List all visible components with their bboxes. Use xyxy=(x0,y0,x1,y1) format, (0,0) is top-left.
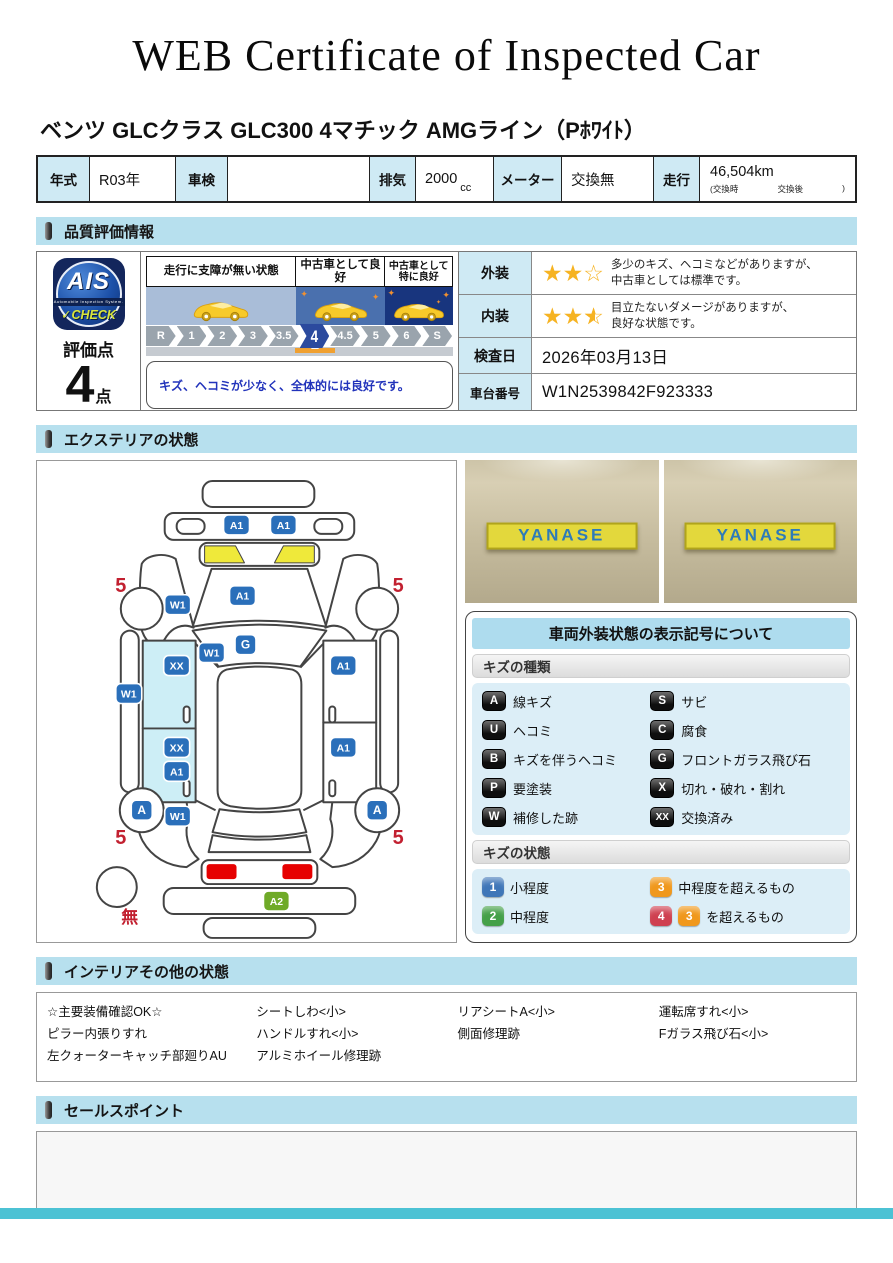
scale-tick-4: 4 xyxy=(300,324,330,348)
interior-notes-column: 運転席すれ<小>Fガラス飛び石<小> xyxy=(659,1002,852,1072)
damage-state-list: 1小程度3中程度を超えるもの2中程度43を超えるもの xyxy=(472,869,850,934)
damage-kind-W: W補修した跡 xyxy=(482,807,650,827)
interior-notes-column: リアシートA<小>側面修理跡 xyxy=(458,1002,659,1072)
star-half-icon: ☆★ xyxy=(583,305,604,328)
section-header-quality: 品質評価情報 xyxy=(36,217,857,245)
page-title: WEB Certificate of Inspected Car xyxy=(0,30,893,81)
inspection-date-value: 2026年03月13日 xyxy=(531,338,856,374)
scale-tick-R: R xyxy=(146,326,176,346)
section-header-sales: セールスポイント xyxy=(36,1096,857,1124)
exterior-stars: ★★☆ xyxy=(542,262,604,285)
damage-kind-S: Sサビ xyxy=(650,691,840,711)
sparkle-icon: ✦ xyxy=(372,292,380,303)
interior-notes-column: ☆主要装備確認OK☆ピラー内張りすれ左クォーターキャッチ部廻りAU xyxy=(47,1002,256,1072)
damage-marker-A1: A1 xyxy=(330,737,356,757)
interior-note: リアシートA<小> xyxy=(458,1002,659,1024)
damage-kind-XX: XX交換済み xyxy=(650,807,840,827)
star-full-icon: ★ xyxy=(542,262,563,285)
exterior-diagram-box: A1A1A1W1GW1XXW1XXA1A1A1AAW1A25555無 xyxy=(36,460,457,943)
footer-bar xyxy=(0,1208,893,1219)
sparkle-icon: ✦ xyxy=(300,289,308,300)
svg-text:G: G xyxy=(241,638,250,652)
svg-text:XX: XX xyxy=(170,743,184,754)
evaluation-comment: キズ、ヘコミが少なく、全体的には良好です。 xyxy=(146,361,453,409)
photo-left: YANASE xyxy=(465,460,659,603)
inspection-label: 車検 xyxy=(176,157,228,201)
star-full-icon: ★ xyxy=(542,305,563,328)
evaluation-table: 外装 ★★☆ 多少のキズ、ヘコミなどがありますが、 中古車としては標準です。 内… xyxy=(459,252,856,410)
star-full-icon: ★ xyxy=(563,305,584,328)
vehicle-photos: YANASE YANASE xyxy=(465,460,857,603)
damage-state-badge-3: 3 xyxy=(650,877,672,897)
damage-marker-W1: W1 xyxy=(116,684,142,704)
svg-text:A: A xyxy=(373,803,382,817)
svg-text:A: A xyxy=(137,803,146,817)
damage-state-badge-3: 3 xyxy=(678,906,700,926)
svg-text:A1: A1 xyxy=(170,767,184,778)
damage-kind-badge: P xyxy=(482,778,506,798)
svg-text:A1: A1 xyxy=(236,592,250,603)
damage-marker-W1: W1 xyxy=(199,643,225,663)
damage-state-item: 2中程度 xyxy=(482,906,650,926)
svg-text:A2: A2 xyxy=(270,897,284,908)
damage-kind-badge: A xyxy=(482,691,506,711)
score-indicator xyxy=(295,348,335,353)
svg-text:XX: XX xyxy=(170,662,184,673)
score-unit: 点 xyxy=(95,391,111,405)
svg-text:A1: A1 xyxy=(277,521,291,532)
scale-tick-3: 3 xyxy=(238,326,268,346)
damage-marker-W1: W1 xyxy=(165,595,191,615)
scale-band-label-3: 中古車として 特に良好 xyxy=(385,256,453,287)
displacement-value: 2000 xyxy=(416,171,457,187)
damage-kind-P: P要塗装 xyxy=(482,778,650,798)
damage-kind-A: A線キズ xyxy=(482,691,650,711)
score-value: 4 xyxy=(66,363,95,407)
damage-marker-A1: A1 xyxy=(224,515,250,535)
interior-note: ピラー内張りすれ xyxy=(47,1024,256,1046)
vin-value: W1N2539842F923333 xyxy=(531,374,856,410)
svg-text:A1: A1 xyxy=(337,743,351,754)
damage-kind-C: C腐食 xyxy=(650,720,840,740)
section-title-sales: セールスポイント xyxy=(64,1100,184,1121)
certificate-page: WEB Certificate of Inspected Car ベンツ GLC… xyxy=(0,0,893,1219)
car-body-shapes xyxy=(97,481,399,938)
scale-tick-3.5: 3.5 xyxy=(269,326,299,346)
damage-state-item: 1小程度 xyxy=(482,877,650,897)
scale-band-good: ✦ ✦ xyxy=(296,287,385,325)
scale-tick-2: 2 xyxy=(207,326,237,346)
star-full-icon: ★ xyxy=(563,262,584,285)
legend-title: 車両外装状態の表示記号について xyxy=(472,618,850,649)
legend-state-header: キズの状態 xyxy=(472,840,850,864)
mileage-value: 46,504km xyxy=(710,164,847,180)
damage-state-badge-2: 2 xyxy=(482,906,504,926)
interior-note: 側面修理跡 xyxy=(458,1024,659,1046)
sparkle-icon: ✦ xyxy=(387,288,395,299)
meter-label: メーター xyxy=(494,157,562,201)
section-title-exterior: エクステリアの状態 xyxy=(64,429,199,450)
car-diagram: A1A1A1W1GW1XXW1XXA1A1A1AAW1A25555無 xyxy=(37,461,456,942)
ais-logo: AIS Automobile Inspection System. ✓CHECK xyxy=(53,258,125,330)
vin-label: 車台番号 xyxy=(459,374,531,410)
ais-logo-text: AIS xyxy=(53,268,125,296)
legend-kind-header: キズの種類 xyxy=(472,654,850,678)
svg-text:W1: W1 xyxy=(204,649,220,660)
ais-check-text: ✓CHECK xyxy=(53,307,125,322)
displacement-label: 排気 xyxy=(370,157,416,201)
damage-marker-A2: A2 xyxy=(263,891,289,911)
damage-kind-badge: X xyxy=(650,778,674,798)
damage-marker-A1: A1 xyxy=(164,761,190,781)
yanase-sign: YANASE xyxy=(685,522,836,549)
interior-note: ☆主要装備確認OK☆ xyxy=(47,1002,256,1024)
car-icon xyxy=(190,298,252,322)
section-accent-bar xyxy=(45,962,52,980)
scale-tick-6: 6 xyxy=(392,326,422,346)
damage-marker-A1: A1 xyxy=(270,515,296,535)
damage-marker-XX: XX xyxy=(164,737,190,757)
damage-kind-U: Uヘコミ xyxy=(482,720,650,740)
scale-baseline xyxy=(146,347,453,356)
damage-kind-badge: C xyxy=(650,720,674,740)
scale-tick-S: S xyxy=(422,326,452,346)
interior-notes-box: ☆主要装備確認OK☆ピラー内張りすれ左クォーターキャッチ部廻りAUシートしわ<小… xyxy=(36,992,857,1082)
scale-tick-1: 1 xyxy=(177,326,207,346)
interior-note: 運転席すれ<小> xyxy=(659,1002,852,1024)
mileage-note-left: (交換時 xyxy=(710,183,738,195)
damage-kind-X: X切れ・破れ・割れ xyxy=(650,778,840,798)
section-accent-bar xyxy=(45,1101,52,1119)
section-header-exterior: エクステリアの状態 xyxy=(36,425,857,453)
damage-marker-W1: W1 xyxy=(165,806,191,826)
damage-kind-badge: B xyxy=(482,749,506,769)
interior-rating-label: 内装 xyxy=(459,295,531,338)
car-title: ベンツ GLCクラス GLC300 4マチック AMGライン（Pﾎﾜｲﾄ） xyxy=(40,113,857,145)
svg-text:A1: A1 xyxy=(230,521,244,532)
damage-kind-badge: U xyxy=(482,720,506,740)
svg-text:W1: W1 xyxy=(170,601,186,612)
damage-kind-badge: G xyxy=(650,749,674,769)
sales-points-box xyxy=(36,1131,857,1219)
spec-table: 年式 R03年 車検 排気 2000 cc メーター 交換無 走行 46,504… xyxy=(36,155,857,203)
mileage-label: 走行 xyxy=(654,157,700,201)
interior-rating-value: ★★☆★ 目立たないダメージがありますが、 良好な状態です。 xyxy=(531,295,856,338)
damage-marker-G: G xyxy=(235,635,256,655)
yanase-sign: YANASE xyxy=(486,522,637,549)
section-title-quality: 品質評価情報 xyxy=(64,221,154,242)
damage-kind-badge: XX xyxy=(650,807,674,827)
svg-text:A1: A1 xyxy=(337,662,351,673)
inspection-value xyxy=(228,157,370,201)
mileage-note-mid: 交換後 xyxy=(777,183,803,195)
scale-tick-4.5: 4.5 xyxy=(330,326,360,346)
scale-band-label-1: 走行に支障が無い状態 xyxy=(146,256,296,287)
damage-marker-A1: A1 xyxy=(230,586,256,606)
meter-value: 交換無 xyxy=(562,157,654,201)
scale-bands: ✦ ✦ ✦ ✦ ✦ xyxy=(146,287,453,325)
damage-state-badge-4: 4 xyxy=(650,906,672,926)
interior-stars: ★★☆★ xyxy=(542,305,604,328)
scale-band-normal xyxy=(146,287,296,325)
interior-note: アルミホイール修理跡 xyxy=(256,1046,457,1068)
damage-kind-G: Gフロントガラス飛び石 xyxy=(650,749,840,769)
scale-tick-5: 5 xyxy=(361,326,391,346)
mileage-cell: 46,504km (交換時 交換後 ) xyxy=(700,157,855,201)
star-empty-icon: ☆ xyxy=(583,262,604,285)
spare-tire-none: 無 xyxy=(121,907,138,927)
damage-state-item: 43を超えるもの xyxy=(650,906,840,926)
interior-note: ハンドルすれ<小> xyxy=(256,1024,457,1046)
tire-depth-front-right: 5 xyxy=(393,575,404,597)
svg-text:W1: W1 xyxy=(170,812,186,823)
damage-kind-B: Bキズを伴うヘコミ xyxy=(482,749,650,769)
interior-note: Fガラス飛び石<小> xyxy=(659,1024,852,1046)
scale-band-label-2: 中古車として良好 xyxy=(296,256,385,287)
svg-text:W1: W1 xyxy=(121,690,137,701)
score-column: AIS Automobile Inspection System. ✓CHECK… xyxy=(37,252,141,410)
interior-note: 左クォーターキャッチ部廻りAU xyxy=(47,1046,256,1068)
rating-scale: 走行に支障が無い状態 中古車として良好 中古車として 特に良好 ✦ xyxy=(141,252,459,410)
legend-panel: 車両外装状態の表示記号について キズの種類 A線キズSサビUヘコミC腐食Bキズを… xyxy=(465,611,857,943)
section-title-interior: インテリアその他の状態 xyxy=(64,961,229,982)
photo-right: YANASE xyxy=(664,460,858,603)
year-value: R03年 xyxy=(90,157,176,201)
damage-marker-A: A xyxy=(367,800,388,820)
damage-marker-A: A xyxy=(131,800,152,820)
interior-note: シートしわ<小> xyxy=(256,1002,457,1024)
tire-depth-rear-right: 5 xyxy=(393,827,404,849)
damage-kind-badge: S xyxy=(650,691,674,711)
damage-marker-A1: A1 xyxy=(330,656,356,676)
damage-state-badge-1: 1 xyxy=(482,877,504,897)
car-icon xyxy=(312,299,370,322)
mileage-note-right: ) xyxy=(842,183,845,195)
scale-ticks: R1233.544.556S xyxy=(146,326,453,346)
section-accent-bar xyxy=(45,430,52,448)
scale-band-excellent: ✦ ✦ ✦ xyxy=(385,287,453,325)
tire-depth-front-left: 5 xyxy=(115,575,126,597)
damage-kind-badge: W xyxy=(482,807,506,827)
damage-kind-list: A線キズSサビUヘコミC腐食Bキズを伴うヘコミGフロントガラス飛び石P要塗装X切… xyxy=(472,683,850,835)
section-header-interior: インテリアその他の状態 xyxy=(36,957,857,985)
exterior-rating-label: 外装 xyxy=(459,252,531,295)
exterior-rating-value: ★★☆ 多少のキズ、ヘコミなどがありますが、 中古車としては標準です。 xyxy=(531,252,856,295)
displacement-unit: cc xyxy=(460,182,471,194)
inspection-date-label: 検査日 xyxy=(459,338,531,374)
damage-state-item: 3中程度を超えるもの xyxy=(650,877,840,897)
damage-marker-XX: XX xyxy=(164,656,190,676)
ais-logo-subtext: Automobile Inspection System. xyxy=(53,298,125,306)
evaluation-box: AIS Automobile Inspection System. ✓CHECK… xyxy=(36,251,857,411)
car-icon xyxy=(392,300,446,322)
tire-depth-rear-left: 5 xyxy=(115,827,126,849)
section-accent-bar xyxy=(45,222,52,240)
interior-notes-column: シートしわ<小>ハンドルすれ<小>アルミホイール修理跡 xyxy=(256,1002,457,1072)
year-label: 年式 xyxy=(38,157,90,201)
